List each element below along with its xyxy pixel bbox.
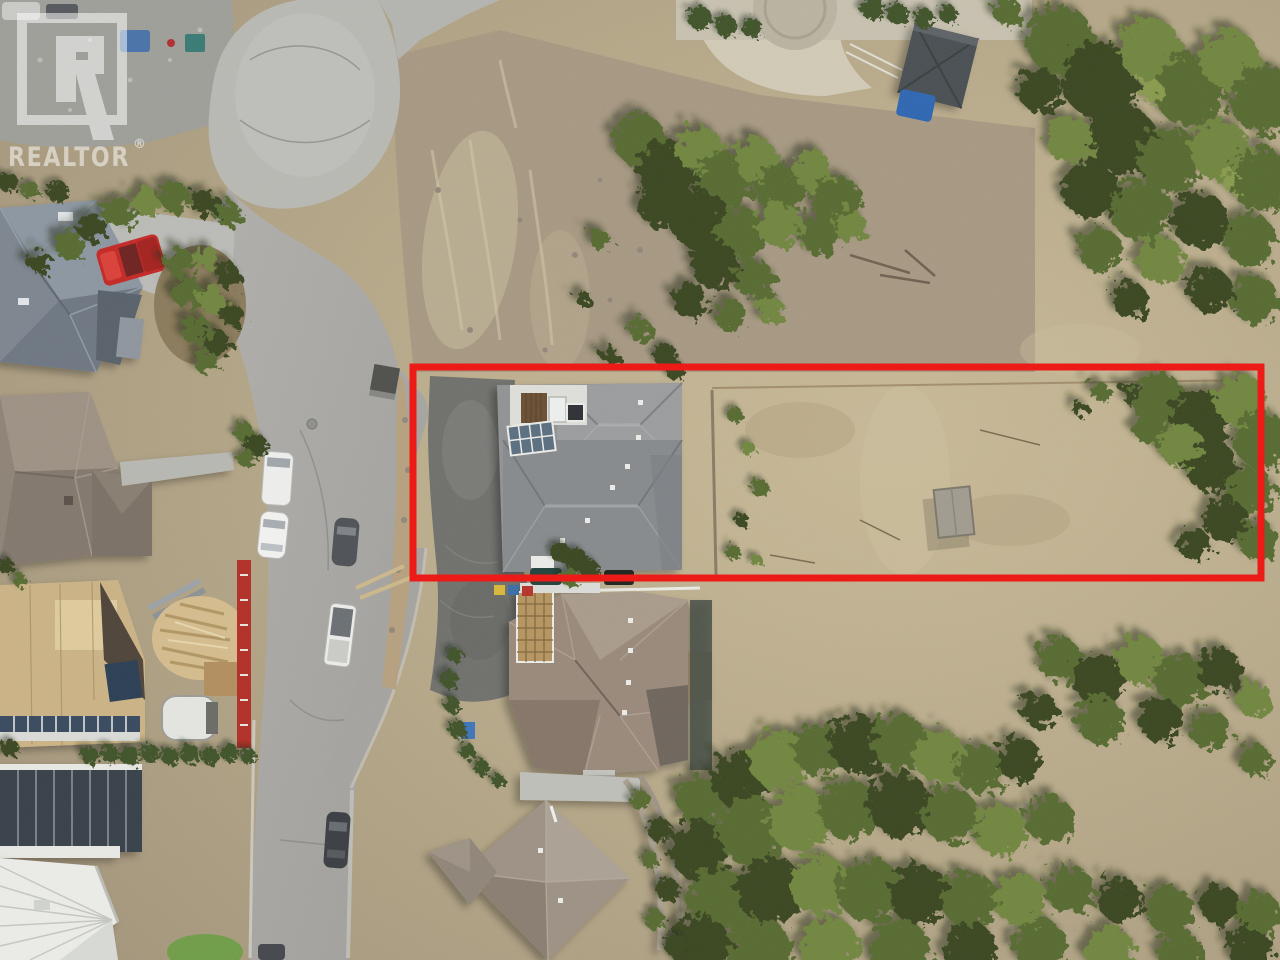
watermark-word: REALTOR (8, 142, 130, 173)
watermark-text: REALTOR (8, 142, 130, 173)
registered-mark: ® (133, 137, 146, 152)
aerial-photo: REALTOR ® (0, 0, 1280, 960)
photo-grain (0, 0, 1280, 960)
watermark-registered: ® (133, 137, 146, 152)
